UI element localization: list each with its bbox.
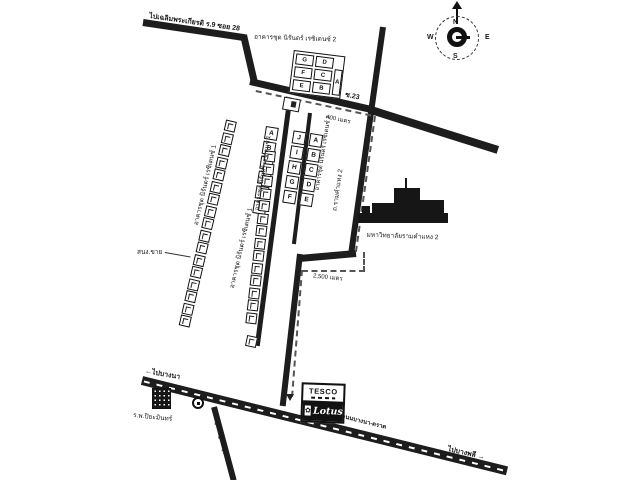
hospital-label: ร.พ.ปิยะมินทร์	[133, 410, 173, 424]
roundabout-center-dot	[197, 402, 200, 405]
sales-office-pointer-line	[165, 252, 191, 257]
ramkhamhaeng-road-label: ถ.รามคำแหง 2	[325, 137, 350, 242]
condo-unit-cell	[198, 229, 211, 242]
building-cell: F	[294, 66, 313, 79]
condo-unit-cell	[254, 237, 266, 249]
condo-unit-cell	[221, 132, 234, 145]
compass-rose: N W E S	[425, 0, 495, 76]
road-soi23-east	[370, 106, 499, 154]
condo-unit-cell	[247, 299, 259, 311]
tesco-sign-bottom: ✿ Lotus	[302, 400, 343, 421]
condo-unit-cell	[252, 250, 264, 262]
building-cell: F	[282, 190, 297, 205]
compass-north-arrowhead-icon	[452, 1, 462, 9]
hospital-building-icon	[152, 388, 171, 409]
project-entrance-gate	[282, 97, 301, 113]
condo-unit-cell	[207, 193, 220, 206]
compass-e-label: E	[485, 34, 490, 41]
route-arrowhead-icon	[286, 394, 294, 401]
condo-unit-cell	[250, 274, 262, 286]
lotus-flower-icon: ✿	[305, 405, 312, 415]
building-cell: J	[292, 130, 307, 145]
condo-unit-cell	[187, 278, 200, 291]
building-cell: C	[313, 69, 332, 82]
sales-office-label: สนง.ขาย	[137, 247, 162, 257]
route-dash-corner	[302, 252, 365, 272]
condo-unit-cell	[251, 262, 263, 274]
condo-unit-cell	[215, 156, 228, 169]
university-antenna	[405, 178, 407, 190]
building-cell: E	[292, 79, 311, 92]
condo-unit-cell	[204, 205, 217, 218]
compass-n-label: N	[453, 19, 458, 26]
compass-s-label: S	[453, 53, 458, 60]
building-cell: B	[312, 82, 331, 95]
distance-2500m-label: 2,500 เมตร	[313, 270, 344, 283]
university-wing-left	[372, 203, 394, 223]
building-cell: A	[332, 69, 343, 96]
condo-unit-cell	[201, 217, 214, 230]
gate-mark	[291, 101, 297, 108]
condo-unit-cell	[182, 302, 195, 315]
condo-unit-cell	[248, 287, 260, 299]
university-silhouette	[356, 178, 450, 228]
condo-unit-cell	[184, 290, 197, 303]
university-label: มหาวิทยาลัยรามคำแหง 2	[350, 229, 455, 243]
university-tower	[394, 188, 420, 223]
lotus-brand-label: Lotus	[313, 405, 343, 417]
tesco-brand-label: TESCO	[309, 387, 338, 397]
compass-w-label: W	[427, 34, 434, 41]
condo-unit-cell	[224, 120, 237, 133]
condo-unit-cell	[190, 266, 203, 279]
condo-unit-cell	[212, 168, 225, 181]
condo-unit-cell	[245, 312, 257, 324]
condo-unit-cell	[255, 225, 267, 237]
building-cell: H	[287, 160, 302, 175]
tesco-dashes-icon	[311, 397, 335, 400]
condo-unit-cell-lone	[245, 335, 258, 348]
roundabout-icon	[192, 397, 204, 409]
condo-unit-cell	[210, 180, 223, 193]
condo-unit-cell	[179, 314, 192, 327]
building-cell: G	[295, 53, 314, 66]
university-wing-right	[420, 200, 444, 223]
condo-unit-cell	[218, 144, 231, 157]
compass-needle-bar-icon	[456, 36, 470, 39]
condo-unit-cell	[193, 254, 206, 267]
tesco-sign-top: TESCO	[303, 384, 344, 401]
building-cell: I	[289, 145, 304, 160]
map-canvas: N W E S G D F C E B A ABCDEF JIHGF ABCDE	[0, 0, 640, 480]
condo2-top-label: อาคารชุด นิรันดร์ เรซิเดนซ์ 2	[254, 32, 337, 45]
building-cell: G	[285, 175, 300, 190]
university-annex	[362, 206, 370, 223]
condo-unit-cell	[196, 241, 209, 254]
condo-block-residence2: G D F C E B A	[289, 50, 346, 99]
road-top-bend-segment	[240, 34, 258, 84]
tesco-lotus-sign: TESCO ✿ Lotus	[300, 382, 345, 424]
building-cell: D	[315, 56, 334, 69]
